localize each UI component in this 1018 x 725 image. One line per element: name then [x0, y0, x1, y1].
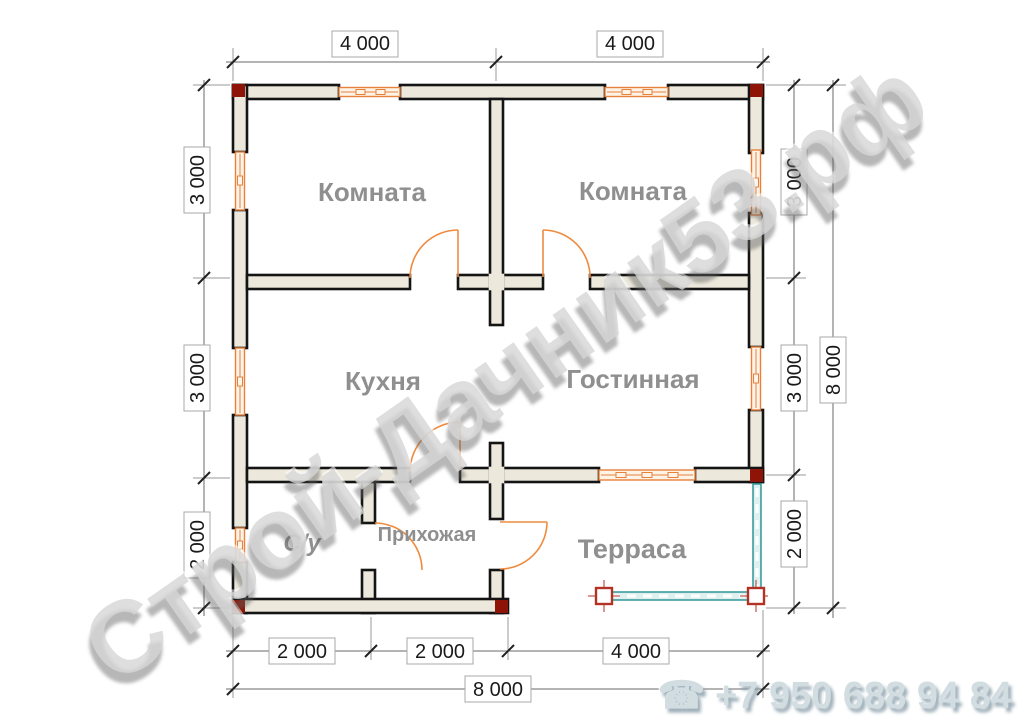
- window-left-2: [236, 348, 245, 415]
- dim-left-3: 2 000: [187, 520, 209, 570]
- room-label-kitchen: Кухня: [345, 366, 421, 396]
- room-label-hallway: Прихожая: [378, 524, 477, 546]
- dim-bottom-1: 2 000: [277, 641, 327, 663]
- window-right-2: [752, 347, 761, 410]
- door-bedroom1: [410, 230, 458, 278]
- dim-bottom-3: 4 000: [611, 641, 661, 663]
- dim-right-3: 2 000: [784, 509, 806, 559]
- room-label-terrace: Терраса: [578, 534, 688, 564]
- door-kitchen: [410, 422, 460, 472]
- phone-icon: ☎: [658, 675, 705, 717]
- phone-contact: ☎+7 950 688 94 84: [658, 673, 1012, 718]
- room-label-bedroom1: Комната: [318, 177, 427, 207]
- dim-right-total: 8 000: [823, 345, 845, 395]
- wall-lower: [247, 468, 410, 482]
- wall-middle: [590, 275, 749, 289]
- wall-bathroom-divider: [362, 482, 375, 523]
- window-left-1: [236, 152, 245, 210]
- wall-junction: [489, 274, 505, 291]
- window-living-bottom: [599, 470, 695, 480]
- terrace-post: [596, 588, 612, 604]
- corner-marker: [750, 469, 763, 482]
- door-bedroom2: [543, 230, 590, 278]
- corner-marker: [232, 600, 245, 613]
- dim-top-1: 4 000: [340, 33, 390, 55]
- wall-bottom: [233, 599, 508, 613]
- floor-plan: 4 000 4 000 3 000 3 000 2 000 3 000 3 00…: [0, 0, 1018, 720]
- dim-right-1: 3 000: [784, 157, 806, 207]
- corner-marker: [750, 84, 763, 97]
- floor-plan-svg: 4 000 4 000 3 000 3 000 2 000 3 000 3 00…: [0, 0, 1018, 720]
- wall-left: [233, 415, 247, 528]
- dim-left-1: 3 000: [187, 155, 209, 205]
- window-top-1: [339, 88, 400, 97]
- room-label-living: Гостинная: [566, 364, 699, 394]
- phone-number: +7 950 688 94 84: [715, 675, 1012, 717]
- wall-lower: [460, 468, 599, 482]
- window-top-2: [605, 88, 668, 97]
- wall-bedroom-divider: [490, 99, 503, 325]
- corner-marker: [232, 84, 245, 97]
- dim-left-2: 3 000: [187, 353, 209, 403]
- dim-right-2: 3 000: [784, 353, 806, 403]
- corner-marker: [495, 600, 508, 613]
- wall-middle: [247, 275, 410, 289]
- terrace-post: [748, 588, 764, 604]
- room-label-bathroom: С/у: [283, 530, 322, 557]
- door-entrance: [500, 522, 547, 569]
- wall-right: [749, 213, 763, 347]
- dim-bottom-total: 8 000: [473, 679, 523, 701]
- wall-left: [233, 210, 247, 348]
- dim-bottom-2: 2 000: [415, 641, 465, 663]
- dim-top-2: 4 000: [605, 33, 655, 55]
- window-left-3: [236, 528, 245, 562]
- window-right-1: [752, 150, 761, 215]
- wall-top: [400, 85, 605, 99]
- wall-top: [233, 85, 339, 99]
- wall-junction: [489, 467, 505, 484]
- room-label-bedroom2: Комната: [579, 176, 688, 206]
